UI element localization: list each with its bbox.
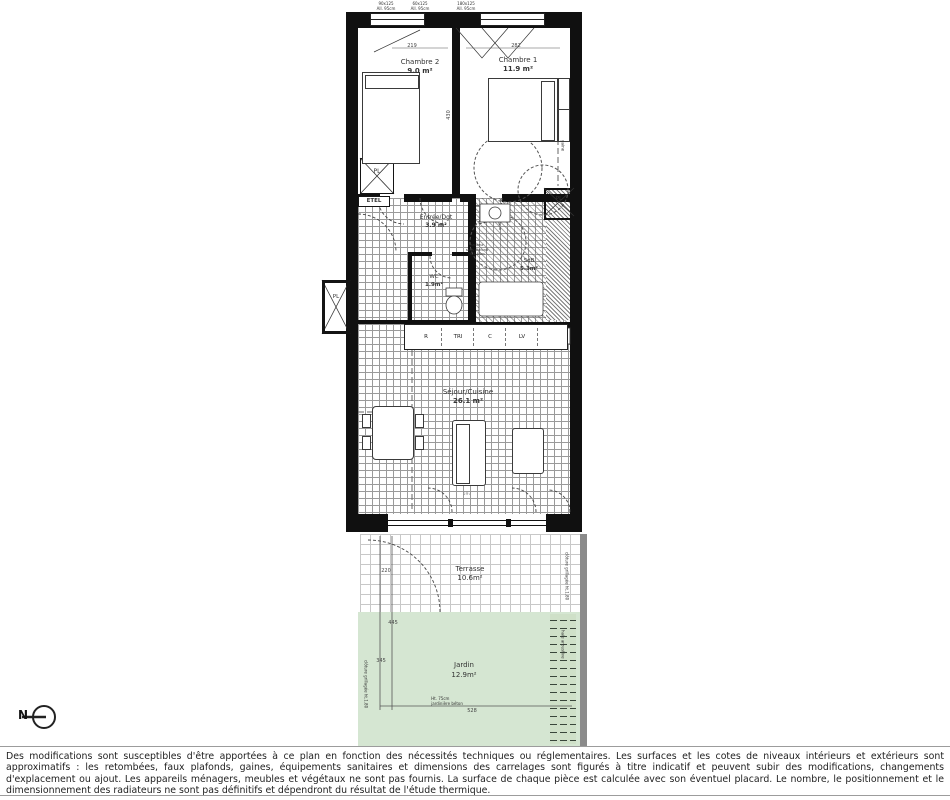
hall-bath-divider [468,198,476,322]
window-note: 60x125 All. 95cm [411,2,430,11]
bed-chambre2 [362,72,420,164]
appliance-fridge: R [411,328,442,346]
door-mullion [506,519,511,527]
shelf-line [559,109,569,110]
dim-rooms-depth: 430 [446,110,452,120]
window-note: 180x125 All. 95cm [457,2,476,11]
wall-bottom-right [546,514,582,532]
hall-floor-tiles [358,198,472,330]
wall-bottom-left [346,514,388,532]
room-area-chambre1: 11.9 m² [503,65,533,73]
room-area-terrasse: 10.6m² [457,574,482,582]
floor-plan-page: R TRI C LV Chambre 2 9.0 m² Chambre 1 11… [0,0,950,800]
hedge-note: haie arbustive [560,630,565,659]
window-chambre1 [480,13,545,26]
window-chambre2 [370,13,425,26]
gaine-note: gaine [560,140,565,151]
room-label-sdb: SdB [524,258,535,265]
room-area-chambre2: 9.0 m² [407,67,432,75]
dim-terrasse: 220 [381,568,391,574]
wall-right [570,28,582,532]
disclaimer-text: Des modifications sont susceptibles d'êt… [6,751,944,797]
appliance-label: C [488,334,492,340]
boundary-wall-bar [580,534,587,746]
dining-table [372,406,414,460]
room-label-jardin: Jardin [454,661,474,669]
appliance-label: LV [519,334,525,340]
dim-jardin-width: 528 [467,708,477,714]
dim-ch1-width: 282 [511,43,521,49]
garden-area [358,612,580,746]
appliance-label: TRI [454,334,463,340]
room-label-chambre2: Chambre 2 [401,58,440,66]
room-area-sejour: 26.1 m² [453,397,483,405]
dim-ch2-width: 219 [407,43,417,49]
chair [362,436,371,450]
room-area-jardin: 12.9m² [451,671,476,679]
footer-bottom-rule [0,795,950,796]
wc-wall [408,252,412,322]
appliance-label: R [424,334,428,340]
appliance-dishwasher: LV [507,328,538,346]
pillow [541,81,555,141]
closet-exterior [322,280,350,334]
room-label-wc: WC [429,274,438,281]
wall-seg [404,194,452,202]
chair [362,414,371,428]
closet-label: PL [374,168,381,175]
ceiling-note: hauteur sous plafond < 1.80m [466,243,488,257]
bed-chambre1 [488,78,558,142]
wall-between-bedrooms [452,28,460,198]
dim-jardin-a: 445 [388,620,398,626]
etel-label: ETEL [367,198,382,205]
chair [415,436,424,450]
room-area-entree: 3.9 m² [425,222,447,229]
terrace-fence-note: clôture grillagée ht.1.80 [564,552,569,600]
appliance-tri: TRI [443,328,474,346]
sliding-door-glass [388,520,546,526]
closet-label: PL [333,294,339,301]
appliance-cooktop: C [475,328,506,346]
footer-top-rule [0,746,950,747]
room-label-entree: Entrée/Dgt [420,214,452,221]
garden-fence-note: clôture grillagée ht.1.80 [363,660,368,708]
sofa [452,420,486,486]
room-area-wc: 1.9m² [425,282,443,289]
room-area-sdb: 5.3m² [520,266,538,273]
bedside-unit [558,78,570,142]
room-label-terrasse: Terrasse [456,565,485,573]
planter-note: Ht. 75cm jardinière béton [431,697,463,706]
kitchen-counter: R TRI C LV [404,324,568,350]
chair [415,414,424,428]
window-note: 90x125 All. 95cm [377,2,396,11]
closet-label: PL [556,196,562,203]
pillow [365,75,419,89]
dim-sejour-width: 597 [463,492,472,497]
coffee-table [512,428,544,474]
room-label-sejour: Séjour/Cuisine [443,388,493,396]
sofa-seat-line [456,424,470,484]
dim-jardin-b: 345 [376,658,386,664]
room-label-chambre1: Chambre 1 [499,56,538,64]
north-label: N [18,708,28,722]
door-mullion [448,519,453,527]
